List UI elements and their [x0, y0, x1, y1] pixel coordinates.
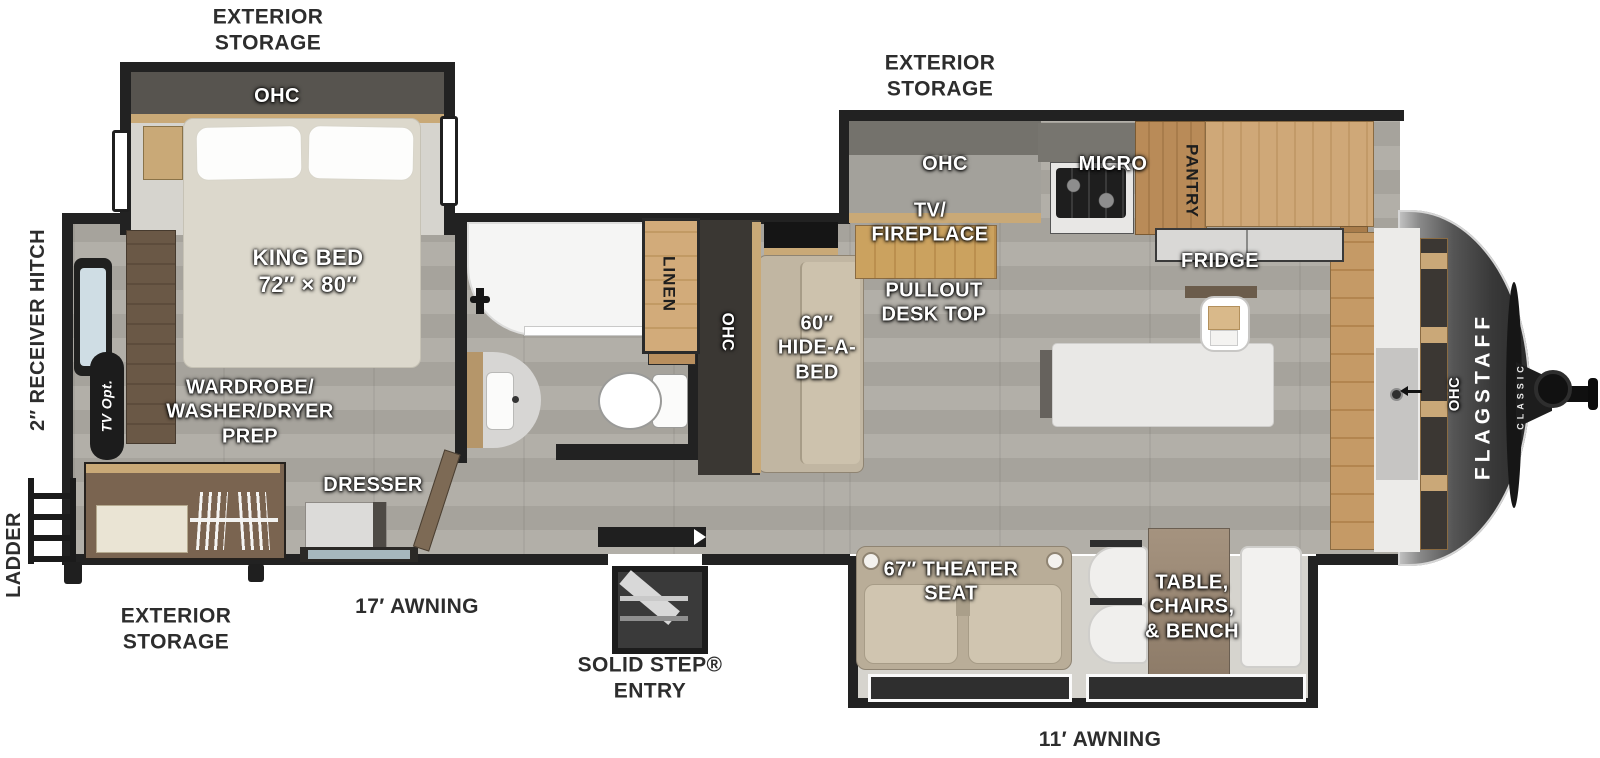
hangers: [196, 492, 228, 550]
front-ohc-doors: [1420, 238, 1448, 550]
wall-top-kitchen: [839, 110, 1404, 121]
stabilizer-jack: [64, 562, 82, 584]
pillow: [196, 125, 303, 181]
dinette-chair-frame: [1090, 540, 1142, 547]
label-exterior-storage-bottom-left: EXTERIOR STORAGE: [121, 603, 232, 654]
entry-step-bar: [620, 616, 688, 621]
label-linen: LINEN: [658, 256, 679, 312]
shower-glass-door: [524, 326, 646, 336]
toilet-bowl: [598, 372, 662, 430]
tv-shelf: [764, 248, 838, 255]
faucet-arrow-icon: [1406, 390, 1422, 393]
entry-step-bar: [620, 596, 688, 601]
label-pullout-desk: PULLOUT DESK TOP: [881, 279, 986, 328]
faucet-arrow-icon: [1400, 386, 1408, 396]
slide-window: [1086, 674, 1306, 702]
brand-logo-series: CLASSIC: [1515, 312, 1526, 480]
label-micro: MICRO: [1079, 152, 1148, 176]
shower: [467, 222, 649, 336]
label-hide-a-bed: 60″ HIDE-A- BED: [778, 311, 856, 384]
stabilizer-jack: [248, 564, 264, 582]
label-king-bed: KING BED 72″ × 80″: [253, 245, 364, 299]
brand-logo: FLAGSTAFF CLASSIC: [1450, 312, 1545, 480]
vanity-wood-front: [467, 352, 483, 448]
nightstand: [143, 126, 183, 180]
label-awning-11: 11′ AWNING: [1039, 727, 1162, 753]
entry-door: [598, 527, 706, 547]
vanity-basin: [486, 372, 514, 430]
label-solid-step-entry: SOLID STEP® ENTRY: [578, 652, 723, 703]
dinette-chair: [1088, 604, 1148, 664]
label-ohc-hall: OHC: [717, 313, 738, 352]
label-fridge: FRIDGE: [1181, 249, 1259, 273]
dresser-tray-glass: [308, 550, 410, 559]
front-counter-inset: [1376, 348, 1418, 480]
label-ohc-kitchen: OHC: [922, 152, 968, 176]
dinette-chair: [1088, 546, 1148, 606]
cupholder: [862, 552, 880, 570]
dinette-chair-frame: [1090, 598, 1142, 605]
wardrobe-top-strip: [86, 464, 280, 473]
label-pantry: PANTRY: [1181, 144, 1202, 218]
label-exterior-storage-top-left: EXTERIOR STORAGE: [213, 4, 324, 55]
island-basin: [1210, 330, 1238, 346]
hitch-coupler-head: [1588, 378, 1598, 410]
cupholder: [1046, 552, 1064, 570]
dresser-side: [373, 502, 386, 552]
pillow: [308, 125, 415, 181]
tv-above-sofa: [764, 222, 838, 248]
king-slide-window-right: [440, 116, 458, 206]
label-awning-17: 17′ AWNING: [355, 594, 479, 620]
label-tv-fireplace: TV/ FIREPLACE: [872, 199, 989, 248]
wall-bottom-mid: [702, 554, 850, 565]
upper-cabinets: [1205, 121, 1374, 227]
label-wardrobe-prep: WARDROBE/ WASHER/DRYER PREP: [166, 375, 333, 448]
hangers: [238, 492, 270, 550]
theater-slide-wall-right: [1308, 556, 1318, 708]
wall-bottom-front: [1316, 554, 1408, 565]
king-slide-window-left: [112, 130, 130, 212]
kitchen-island: [1052, 343, 1274, 427]
wardrobe-bin: [96, 505, 188, 553]
label-ohc-front: OHC: [1446, 377, 1464, 412]
label-ladder: LADDER: [2, 512, 26, 598]
brand-logo-name: FLAGSTAFF: [1470, 312, 1496, 480]
rear-ladder-icon: [28, 478, 76, 564]
front-counter-wood: [1330, 232, 1376, 550]
hall-ohc-wood-edge: [752, 222, 761, 473]
label-dresser: DRESSER: [323, 473, 423, 497]
shower-head-icon: [470, 296, 490, 303]
vanity-faucet: [512, 396, 519, 403]
label-ohc-bedroom: OHC: [254, 84, 300, 108]
label-receiver-hitch: 2″ RECEIVER HITCH: [26, 229, 50, 431]
label-theater-seat: 67″ THEATER SEAT: [884, 558, 1019, 607]
rv-floorplan: EXTERIOR STORAGE EXTERIOR STORAGE EXTERI…: [0, 0, 1600, 758]
slide-window: [868, 674, 1072, 702]
bath-wall-left: [455, 213, 467, 463]
label-exterior-storage-top-right: EXTERIOR STORAGE: [885, 50, 996, 101]
entry-door-latch: [694, 529, 706, 545]
island-cutting-board: [1208, 306, 1240, 330]
king-slide-wall-top: [120, 62, 455, 72]
dinette-bench: [1240, 546, 1302, 668]
label-table-chairs-bench: TABLE, CHAIRS, & BENCH: [1145, 570, 1239, 643]
label-tv-opt: TV Opt.: [98, 380, 115, 433]
